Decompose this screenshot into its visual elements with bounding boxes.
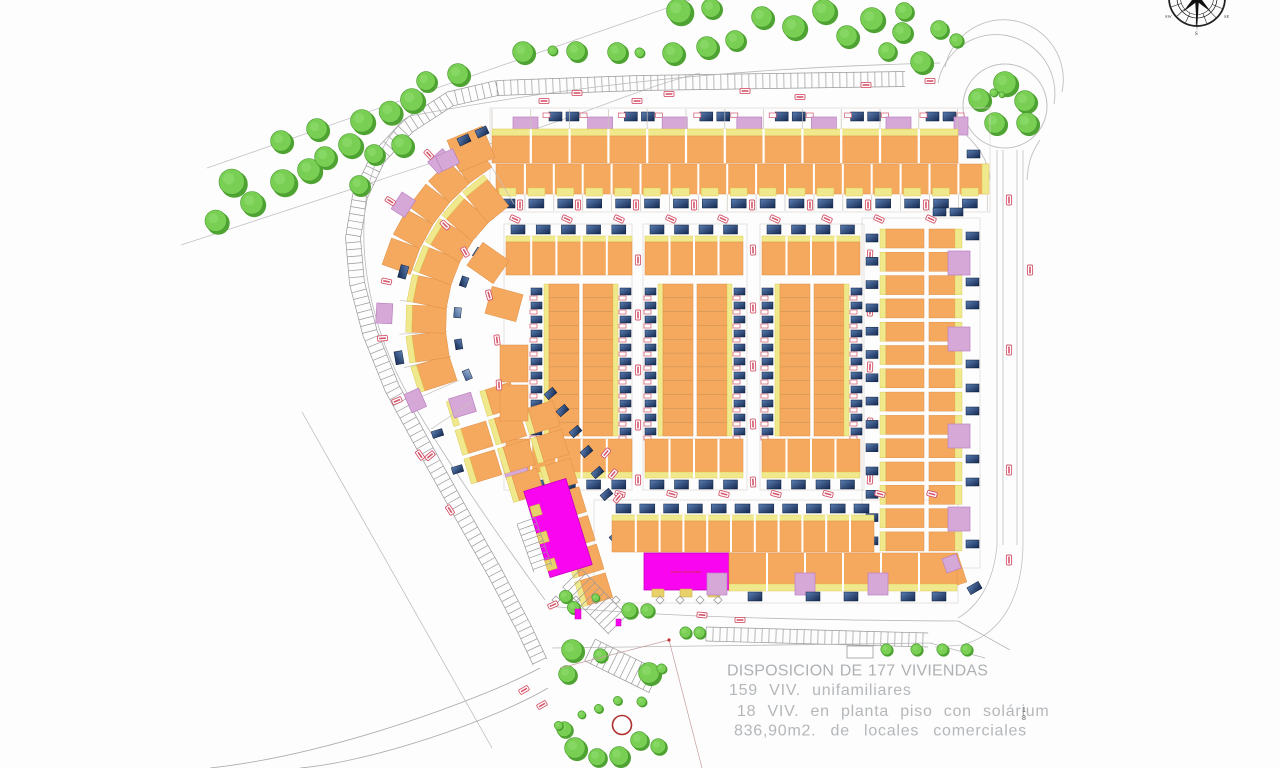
svg-text:159 VIV. unifamiliares: 159 VIV. unifamiliares (729, 682, 912, 699)
svg-text:836,90m2. de locales comercial: 836,90m2. de locales comerciales (734, 723, 1027, 740)
svg-text:18 VIV. en planta piso con sol: 18 VIV. en planta piso con solárium (737, 703, 1049, 720)
svg-text:DISPOSICION DE 177 VIVIENDAS: DISPOSICION DE 177 VIVIENDAS (727, 663, 988, 680)
svg-text:SE: SE (1224, 14, 1230, 19)
svg-text:8: 8 (1022, 715, 1026, 722)
svg-text:1: 1 (1022, 707, 1026, 714)
svg-text:locales comerciales: locales comerciales (671, 570, 702, 574)
svg-text:SW: SW (1165, 14, 1173, 19)
svg-text:S: S (1195, 32, 1198, 37)
